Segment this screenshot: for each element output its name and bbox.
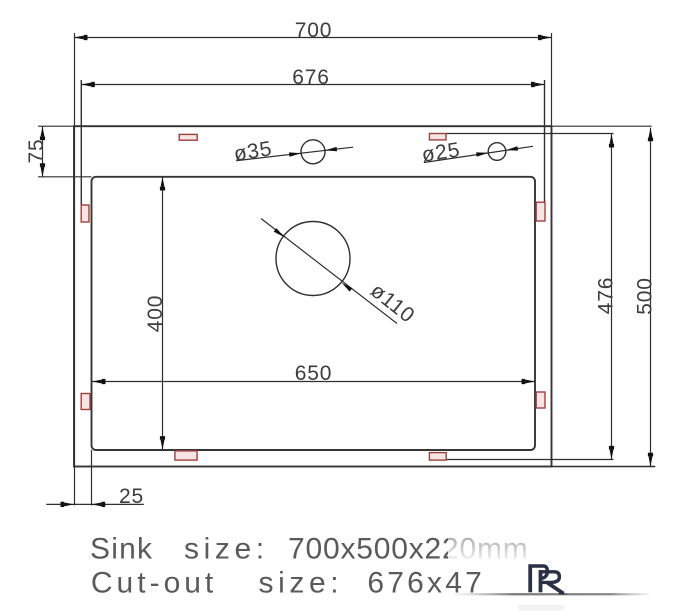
svg-text:400: 400 [144,295,167,332]
svg-text:ø25: ø25 [420,138,462,166]
svg-text:75: 75 [25,139,48,164]
svg-text:ø35: ø35 [232,137,274,166]
svg-text:650: 650 [295,362,332,385]
svg-text:size:: size: [184,533,269,566]
svg-text:25: 25 [119,485,144,508]
svg-text:676: 676 [292,66,329,89]
svg-text:Cut-out: Cut-out [91,567,217,600]
svg-text:size:: size: [259,567,344,600]
svg-text:500: 500 [634,277,657,314]
svg-text:700: 700 [295,19,332,42]
svg-text:Sink: Sink [90,533,153,566]
svg-text:476: 476 [595,277,618,314]
